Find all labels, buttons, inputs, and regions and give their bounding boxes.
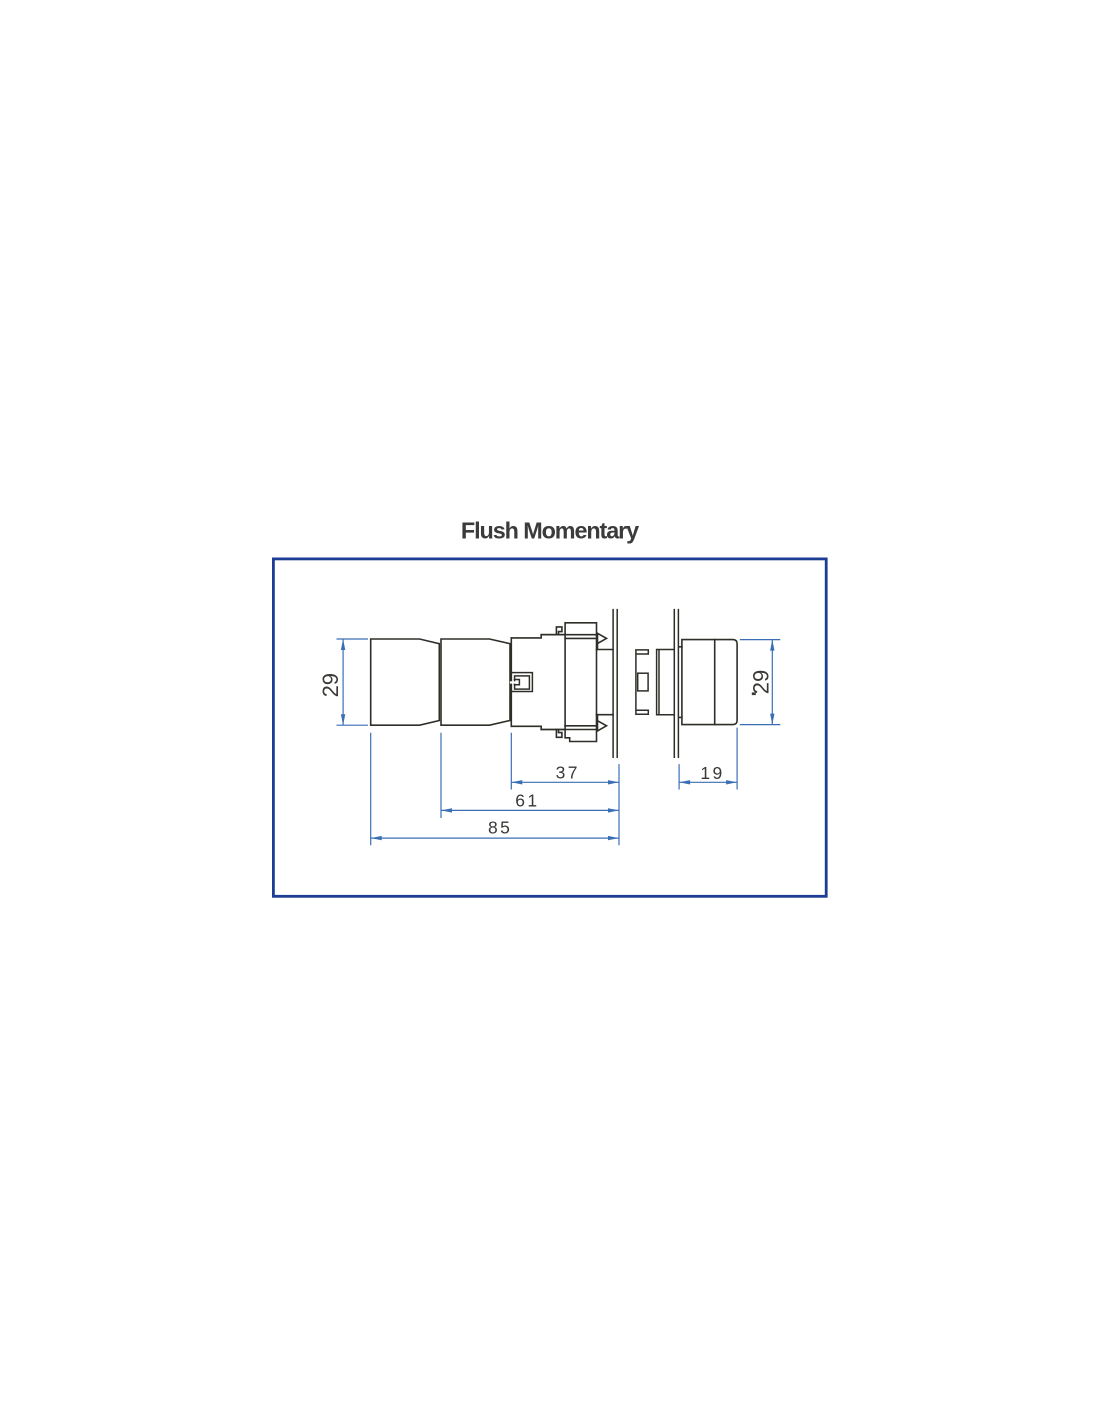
svg-text:61: 61 xyxy=(515,791,539,811)
svg-text:85: 85 xyxy=(488,818,512,838)
svg-text:19: 19 xyxy=(700,763,724,783)
svg-text:37: 37 xyxy=(556,762,580,782)
svg-text:29: 29 xyxy=(318,673,343,697)
svg-text:Flush Momentary: Flush Momentary xyxy=(461,518,639,544)
svg-text:29: 29 xyxy=(748,670,773,694)
